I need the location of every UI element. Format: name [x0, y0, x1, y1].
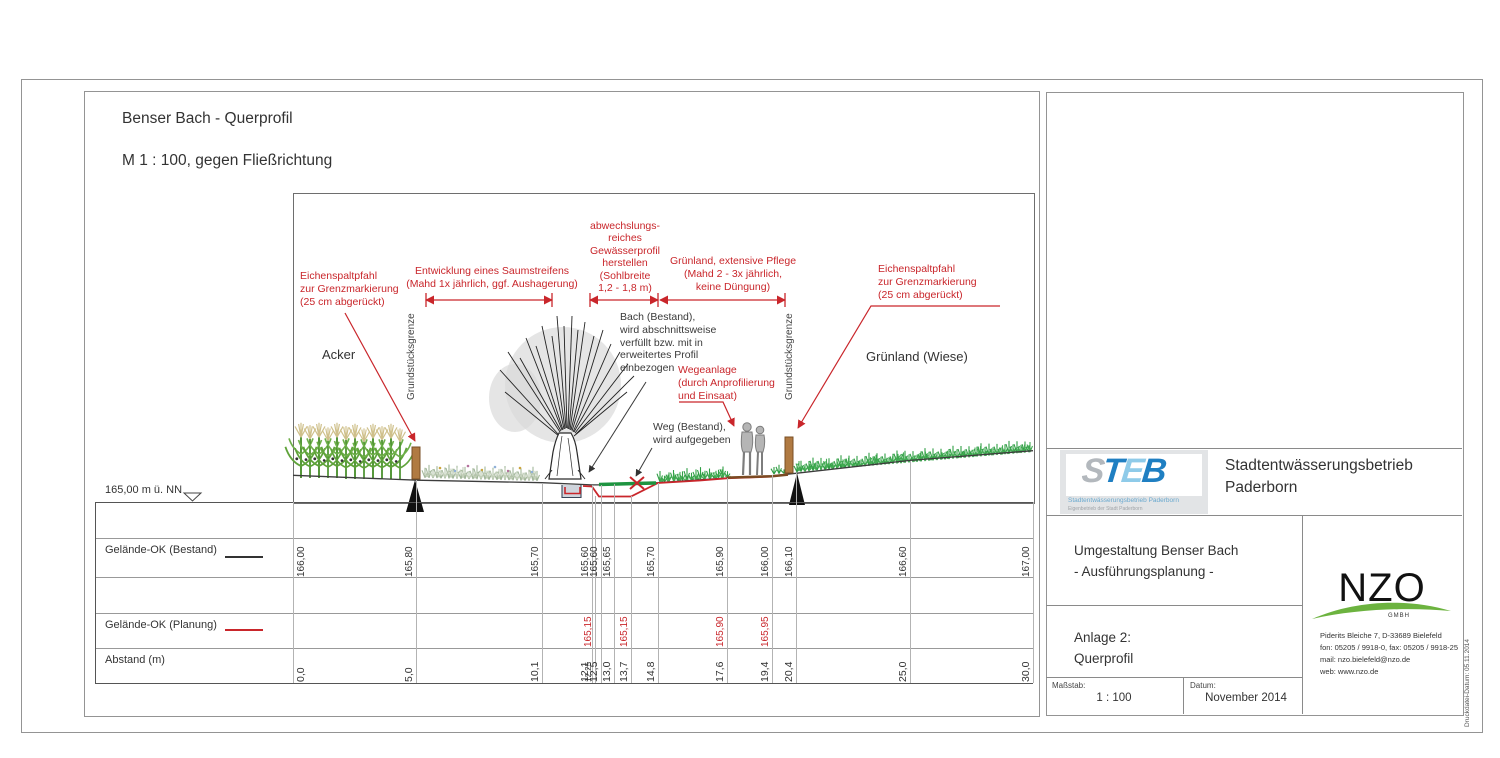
table-value: 25,0 [897, 649, 910, 682]
legend-bestand-line-sample [225, 556, 263, 558]
annotation-wegeanlage: Wegeanlage (durch Anprofilierung und Ein… [678, 364, 775, 402]
table-value: 165,70 [645, 538, 658, 577]
table-value: 20,4 [783, 649, 796, 682]
annotation-weg-bestand: Weg (Bestand), wird aufgegeben [653, 421, 731, 447]
table-line [95, 502, 1033, 503]
page-title: Benser Bach - Querprofil [122, 110, 293, 128]
steb-logo-subtitle: Stadtentwässerungsbetrieb Paderborn [1068, 497, 1179, 504]
table-column-line [1033, 502, 1034, 683]
titleblock-frame [1046, 92, 1464, 716]
table-line [95, 613, 1033, 614]
print-date-note: Druckdatei-Datum: 05.11.2014 [1464, 639, 1471, 727]
table-value: 13,0 [601, 649, 614, 682]
annotation-gewaesserprofil: abwechslungs- reiches Gewässerprofil her… [590, 220, 660, 294]
project-title: Umgestaltung Benser Bach - Ausführungspl… [1074, 540, 1238, 582]
label-boundary-right: Grundstücksgrenze [784, 313, 795, 400]
legend-planung-line-sample [225, 629, 263, 631]
table-value: 14,8 [645, 649, 658, 682]
table-value: 165,70 [529, 538, 542, 577]
table-left-edge [95, 502, 96, 683]
table-value: 17,6 [714, 649, 727, 682]
table-value: 166,00 [295, 538, 308, 577]
annotation-post-right: Eichenspaltpfahl zur Grenzmarkierung (25… [878, 263, 977, 301]
scale-value: 1 : 100 [1096, 692, 1131, 704]
table-column-line [727, 478, 728, 683]
table-value: 166,60 [897, 538, 910, 577]
annotation-saumstreifen: Entwicklung eines Saumstreifens (Mahd 1x… [406, 265, 578, 291]
titleblock-line [1046, 677, 1302, 678]
table-value: 165,15 [618, 613, 631, 647]
nzo-logo-sub: GMBH [1388, 613, 1410, 619]
table-value: 13,7 [618, 649, 631, 682]
table-value: 165,90 [714, 613, 727, 647]
table-value: 165,80 [403, 538, 416, 577]
titleblock-line [1046, 605, 1302, 606]
legend-planung-label: Gelände-OK (Planung) [105, 619, 217, 631]
table-value: 12,5 [588, 649, 601, 682]
table-value: 30,0 [1020, 649, 1033, 682]
table-value: 165,15 [582, 613, 595, 647]
table-value: 0,0 [295, 649, 308, 682]
table-value: 5,0 [403, 649, 416, 682]
table-column-line [293, 502, 294, 683]
table-value: 166,10 [783, 538, 796, 577]
table-value: 19,4 [759, 649, 772, 682]
date-label: Datum: [1190, 681, 1216, 690]
label-boundary-left: Grundstücksgrenze [406, 313, 417, 400]
table-line [95, 538, 1033, 539]
plan-sheet: Benser Bach - Querprofil M 1 : 100, gege… [0, 0, 1500, 758]
titleblock-line [1183, 677, 1184, 714]
table-value: 10,1 [529, 649, 542, 682]
table-value: 166,00 [759, 538, 772, 577]
annotation-gruenland-pflege: Grünland, extensive Pflege (Mahd 2 - 3x … [670, 255, 796, 293]
table-column-line [796, 473, 797, 683]
nzo-logo-text: NZO [1338, 566, 1425, 611]
page-subtitle: M 1 : 100, gegen Fließrichtung [122, 152, 332, 170]
scale-label: Maßstab: [1052, 681, 1085, 690]
label-gruenland: Grünland (Wiese) [866, 349, 968, 364]
nzo-address: Piderits Bleiche 7, D-33689 Bielefeld fo… [1320, 630, 1458, 678]
date-value: November 2014 [1205, 692, 1287, 704]
label-acker: Acker [322, 347, 355, 362]
steb-logo: STEB Stadtentwässerungsbetrieb Paderborn… [1060, 450, 1208, 514]
company-name: Stadtentwässerungsbetrieb Paderborn [1225, 455, 1413, 499]
steb-logo-tagline: Eigenbetrieb der Stadt Paderborn [1068, 506, 1143, 512]
table-value: 165,95 [759, 613, 772, 647]
table-column-line [658, 483, 659, 683]
table-value: 165,60 [588, 538, 601, 577]
legend-bestand-label: Gelände-OK (Bestand) [105, 544, 217, 556]
legend-abstand-label: Abstand (m) [105, 654, 165, 666]
titleblock-line [1302, 515, 1303, 714]
annotation-post-left: Eichenspaltpfahl zur Grenzmarkierung (25… [300, 270, 399, 308]
steb-letter-b: B [1140, 452, 1167, 490]
table-line [95, 577, 1033, 578]
table-column-line [416, 480, 417, 683]
table-value: 165,65 [601, 538, 614, 577]
datum-label: 165,00 m ü. NN [105, 484, 182, 496]
table-value: 165,90 [714, 538, 727, 577]
attachment-title: Anlage 2: Querprofil [1074, 627, 1133, 669]
table-column-line [631, 496, 632, 683]
steb-logo-letters: STEB [1080, 452, 1167, 491]
table-line [95, 683, 1033, 684]
table-line [95, 648, 1033, 649]
titleblock-line [1046, 515, 1462, 516]
table-value: 167,00 [1020, 538, 1033, 577]
titleblock-line [1046, 448, 1462, 449]
table-column-line [542, 483, 543, 683]
